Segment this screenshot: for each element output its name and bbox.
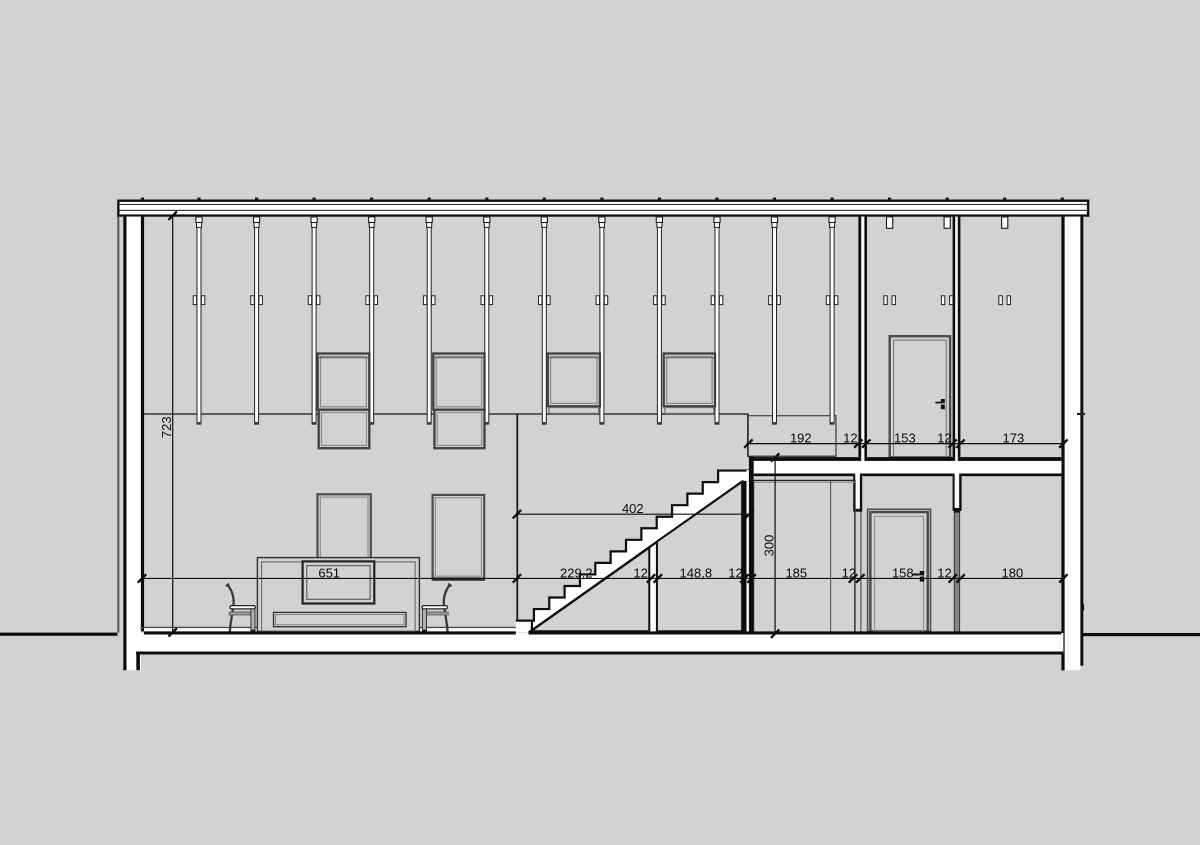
svg-text:723: 723	[159, 416, 174, 438]
svg-text:12: 12	[937, 566, 951, 581]
svg-text:651: 651	[318, 566, 340, 581]
svg-text:185: 185	[785, 566, 807, 581]
svg-text:12: 12	[728, 566, 742, 581]
svg-text:158: 158	[892, 566, 914, 581]
svg-text:12: 12	[937, 430, 951, 445]
svg-text:300: 300	[762, 535, 777, 557]
svg-text:12: 12	[633, 566, 647, 581]
svg-text:192: 192	[790, 430, 812, 445]
svg-text:12: 12	[843, 430, 857, 445]
svg-text:402: 402	[622, 501, 644, 516]
svg-text:173: 173	[1003, 430, 1025, 445]
svg-text:229,2: 229,2	[560, 566, 593, 581]
svg-text:180: 180	[1002, 566, 1024, 581]
svg-text:148,8: 148,8	[680, 566, 713, 581]
svg-text:12: 12	[842, 566, 856, 581]
svg-text:153: 153	[894, 430, 916, 445]
